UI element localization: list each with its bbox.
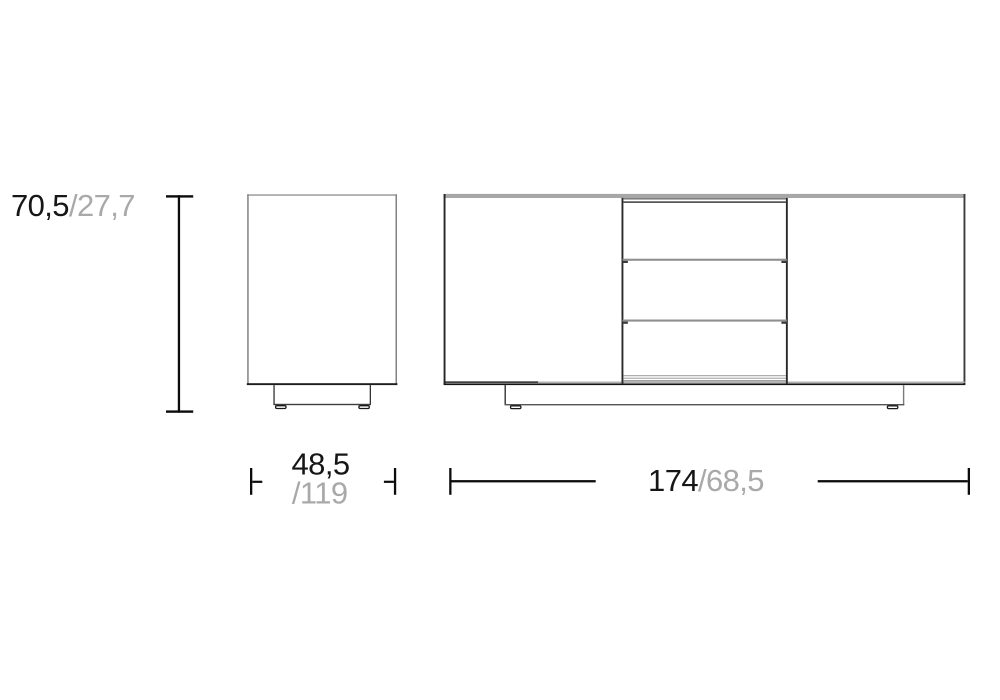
svg-text:70,5/27,7: 70,5/27,7 [11,188,135,223]
svg-text:174/68,5: 174/68,5 [648,463,764,498]
svg-text:/119: /119 [292,476,348,511]
